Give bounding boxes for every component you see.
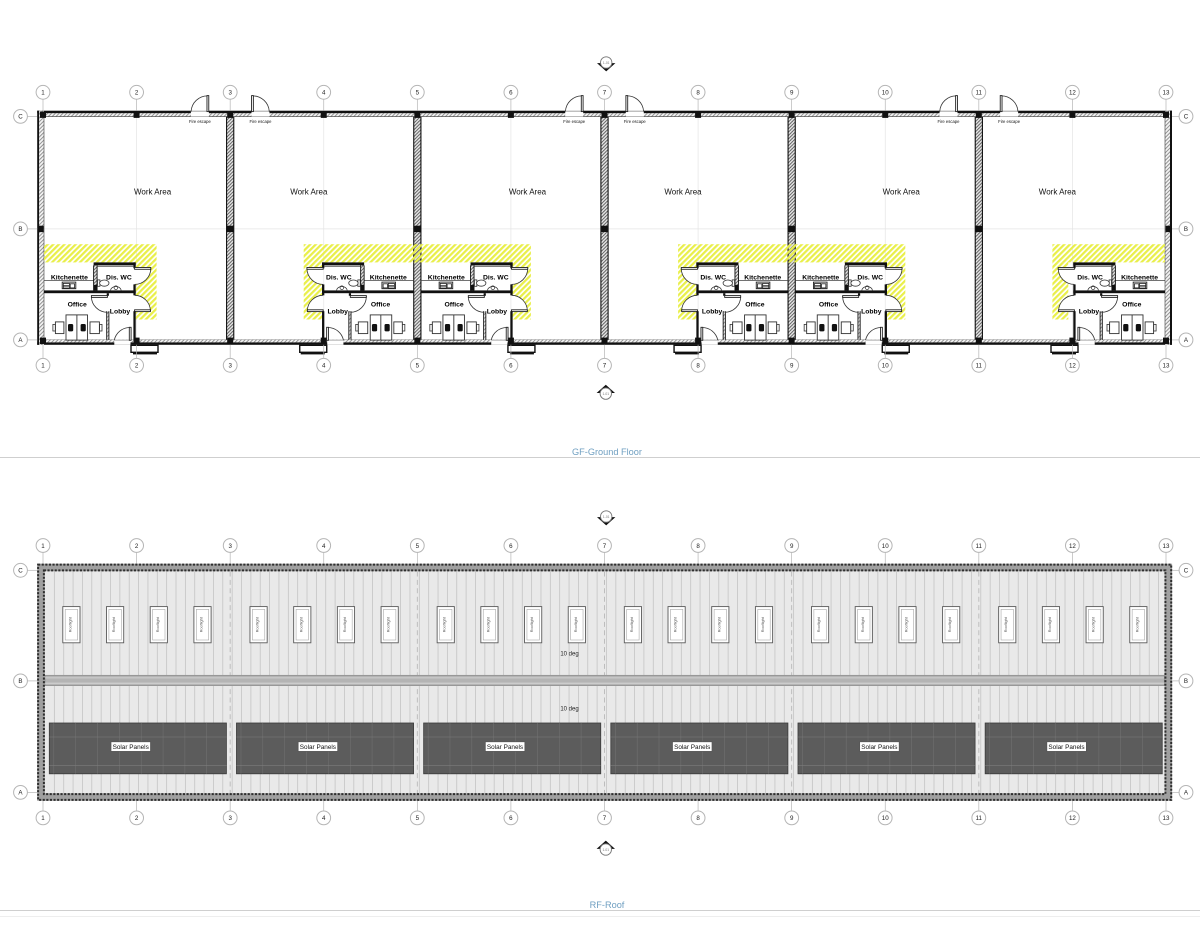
svg-text:3: 3 — [228, 543, 232, 550]
svg-text:B: B — [18, 678, 22, 685]
svg-text:10: 10 — [882, 363, 889, 370]
svg-text:10 deg: 10 deg — [560, 707, 578, 713]
svg-text:GF-Ground Floor: GF-Ground Floor — [572, 447, 642, 457]
svg-text:Rooflight: Rooflight — [717, 616, 721, 632]
svg-text:C: C — [18, 114, 23, 121]
svg-text:Rooflight: Rooflight — [861, 616, 865, 632]
svg-text:Lobby: Lobby — [328, 309, 349, 316]
svg-text:Solar Panels: Solar Panels — [487, 744, 523, 751]
svg-text:13: 13 — [1163, 90, 1170, 97]
svg-text:Office: Office — [1122, 302, 1141, 309]
svg-text:Dis. WC: Dis. WC — [857, 275, 883, 282]
svg-text:1: 1 — [41, 815, 45, 822]
svg-text:Dis. WC: Dis. WC — [1077, 275, 1103, 282]
svg-text:Rooflight: Rooflight — [530, 616, 534, 632]
svg-text:Dis. WC: Dis. WC — [106, 275, 132, 282]
svg-text:2: 2 — [135, 90, 139, 97]
svg-text:Lobby: Lobby — [110, 309, 131, 316]
svg-text:6: 6 — [509, 815, 513, 822]
svg-text:Rooflight: Rooflight — [1048, 616, 1052, 632]
svg-text:Rooflight: Rooflight — [574, 616, 578, 632]
svg-text:Solar Panels: Solar Panels — [674, 744, 710, 751]
svg-text:8: 8 — [696, 363, 700, 370]
svg-text:Fire escape: Fire escape — [998, 119, 1021, 124]
svg-text:Lobby: Lobby — [861, 309, 882, 316]
svg-text:2: 2 — [135, 543, 139, 550]
svg-text:11: 11 — [976, 543, 983, 550]
svg-text:10: 10 — [882, 815, 889, 822]
svg-text:1-01: 1-01 — [603, 61, 610, 65]
svg-text:Fire escape: Fire escape — [250, 119, 273, 124]
svg-text:Kitchenette: Kitchenette — [370, 275, 407, 282]
svg-text:4: 4 — [322, 90, 326, 97]
svg-text:Lobby: Lobby — [487, 309, 508, 316]
svg-text:5: 5 — [416, 90, 420, 97]
svg-text:9: 9 — [790, 363, 794, 370]
svg-text:8: 8 — [696, 90, 700, 97]
svg-text:Kitchenette: Kitchenette — [51, 275, 88, 282]
svg-text:1: 1 — [41, 90, 45, 97]
svg-text:Work Area: Work Area — [509, 187, 547, 196]
svg-text:7: 7 — [603, 363, 607, 370]
svg-text:Rooflight: Rooflight — [200, 616, 204, 632]
svg-text:Lobby: Lobby — [1079, 309, 1100, 316]
svg-text:Rooflight: Rooflight — [1135, 616, 1139, 632]
svg-text:Work Area: Work Area — [883, 187, 921, 196]
svg-text:Rooflight: Rooflight — [674, 616, 678, 632]
svg-text:7: 7 — [603, 543, 607, 550]
svg-text:1: 1 — [41, 543, 45, 550]
svg-text:Office: Office — [819, 302, 838, 309]
svg-text:4: 4 — [322, 363, 326, 370]
svg-text:Rooflight: Rooflight — [343, 616, 347, 632]
svg-text:2: 2 — [135, 815, 139, 822]
svg-text:B: B — [1184, 678, 1188, 685]
svg-text:C: C — [1184, 114, 1189, 121]
svg-text:Lobby: Lobby — [702, 309, 723, 316]
svg-text:Rooflight: Rooflight — [387, 616, 391, 632]
svg-text:13: 13 — [1163, 543, 1170, 550]
svg-text:Work Area: Work Area — [1039, 187, 1077, 196]
svg-text:B: B — [1184, 226, 1188, 233]
svg-text:Kitchenette: Kitchenette — [428, 275, 465, 282]
svg-text:8: 8 — [696, 815, 700, 822]
svg-text:Fire escape: Fire escape — [938, 119, 961, 124]
svg-text:Rooflight: Rooflight — [486, 616, 490, 632]
svg-text:Solar Panels: Solar Panels — [113, 744, 149, 751]
svg-text:Rooflight: Rooflight — [256, 616, 260, 632]
svg-text:10: 10 — [882, 90, 889, 97]
svg-text:B: B — [18, 226, 22, 233]
svg-text:7: 7 — [603, 815, 607, 822]
svg-text:7: 7 — [603, 90, 607, 97]
svg-text:3: 3 — [228, 90, 232, 97]
svg-text:Rooflight: Rooflight — [817, 616, 821, 632]
svg-text:4: 4 — [322, 543, 326, 550]
svg-text:Kitchenette: Kitchenette — [802, 275, 839, 282]
svg-text:12: 12 — [1069, 815, 1076, 822]
svg-text:Work Area: Work Area — [290, 187, 328, 196]
svg-text:Work Area: Work Area — [134, 187, 172, 196]
svg-text:Rooflight: Rooflight — [68, 616, 72, 632]
svg-text:9: 9 — [790, 815, 794, 822]
svg-text:Office: Office — [444, 302, 463, 309]
svg-text:12: 12 — [1069, 363, 1076, 370]
svg-text:Office: Office — [745, 302, 764, 309]
svg-text:Rooflight: Rooflight — [761, 616, 765, 632]
svg-text:Rooflight: Rooflight — [299, 616, 303, 632]
svg-text:Rooflight: Rooflight — [443, 616, 447, 632]
svg-text:12: 12 — [1069, 543, 1076, 550]
svg-text:9: 9 — [790, 543, 794, 550]
svg-text:Office: Office — [68, 302, 87, 309]
svg-text:Rooflight: Rooflight — [112, 616, 116, 632]
svg-text:C: C — [1184, 568, 1189, 575]
svg-text:Fire escape: Fire escape — [189, 119, 212, 124]
svg-text:Rooflight: Rooflight — [1004, 616, 1008, 632]
svg-text:1: 1 — [41, 363, 45, 370]
svg-text:Rooflight: Rooflight — [1092, 616, 1096, 632]
svg-text:6: 6 — [509, 90, 513, 97]
svg-text:Office: Office — [371, 302, 390, 309]
svg-text:Rooflight: Rooflight — [905, 616, 909, 632]
svg-text:Dis. WC: Dis. WC — [483, 275, 509, 282]
svg-text:Rooflight: Rooflight — [630, 616, 634, 632]
svg-text:13: 13 — [1163, 815, 1170, 822]
svg-text:Rooflight: Rooflight — [948, 616, 952, 632]
svg-text:RF-Roof: RF-Roof — [590, 900, 625, 910]
svg-text:5: 5 — [416, 363, 420, 370]
svg-text:12: 12 — [1069, 90, 1076, 97]
svg-text:1-01: 1-01 — [603, 515, 610, 519]
svg-text:8: 8 — [696, 543, 700, 550]
svg-text:Solar Panels: Solar Panels — [1048, 744, 1084, 751]
svg-text:Solar Panels: Solar Panels — [300, 744, 336, 751]
svg-text:C: C — [18, 568, 23, 575]
svg-text:3: 3 — [228, 363, 232, 370]
svg-text:2: 2 — [135, 363, 139, 370]
svg-text:11: 11 — [976, 90, 983, 97]
svg-text:5: 5 — [416, 543, 420, 550]
svg-text:4: 4 — [322, 815, 326, 822]
svg-text:10: 10 — [882, 543, 889, 550]
svg-text:Rooflight: Rooflight — [156, 616, 160, 632]
svg-text:Dis. WC: Dis. WC — [326, 275, 352, 282]
svg-text:Fire escape: Fire escape — [624, 119, 647, 124]
svg-text:1-01: 1-01 — [602, 848, 609, 852]
svg-text:Work Area: Work Area — [664, 187, 702, 196]
svg-text:11: 11 — [976, 815, 983, 822]
svg-text:Solar Panels: Solar Panels — [861, 744, 897, 751]
svg-text:Fire escape: Fire escape — [563, 119, 586, 124]
svg-text:6: 6 — [509, 363, 513, 370]
svg-text:13: 13 — [1163, 363, 1170, 370]
svg-text:6: 6 — [509, 543, 513, 550]
svg-text:11: 11 — [976, 363, 983, 370]
svg-text:Kitchenette: Kitchenette — [1121, 275, 1158, 282]
svg-text:1-01: 1-01 — [602, 392, 609, 396]
svg-text:5: 5 — [416, 815, 420, 822]
svg-text:3: 3 — [228, 815, 232, 822]
svg-text:Kitchenette: Kitchenette — [744, 275, 781, 282]
svg-text:10 deg: 10 deg — [560, 652, 578, 658]
svg-text:9: 9 — [790, 90, 794, 97]
svg-text:Dis. WC: Dis. WC — [700, 275, 726, 282]
